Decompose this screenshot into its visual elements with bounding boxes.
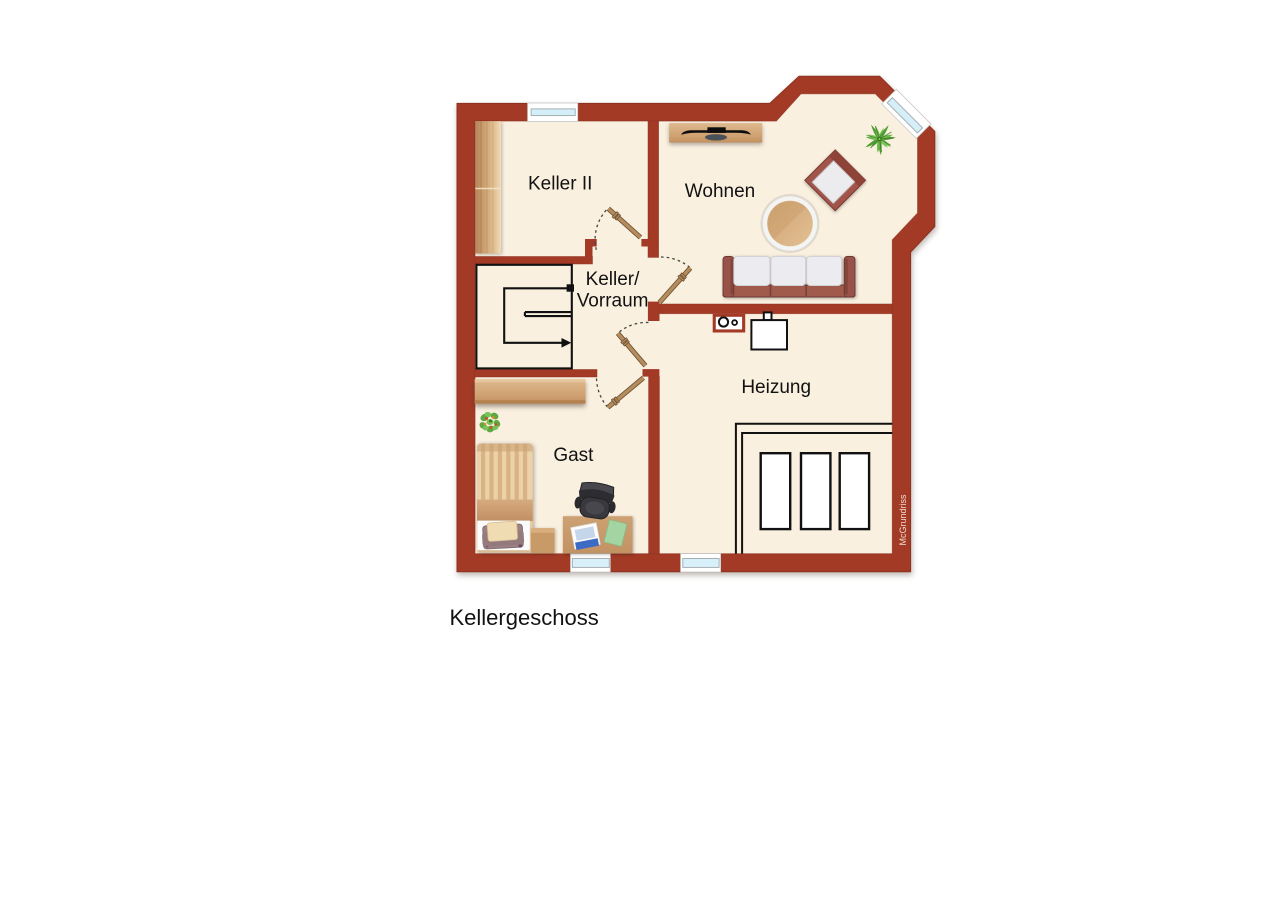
svg-text:Kellergeschoss: Kellergeschoss xyxy=(450,605,599,630)
svg-text:Keller/: Keller/ xyxy=(586,269,641,290)
svg-text:Keller II: Keller II xyxy=(528,174,592,195)
svg-text:Heizung: Heizung xyxy=(741,377,811,398)
svg-text:Vorraum: Vorraum xyxy=(577,290,649,311)
svg-text:Wohnen: Wohnen xyxy=(685,181,755,202)
svg-text:McGrundriss: McGrundriss xyxy=(898,494,908,546)
svg-text:Gast: Gast xyxy=(553,445,594,466)
